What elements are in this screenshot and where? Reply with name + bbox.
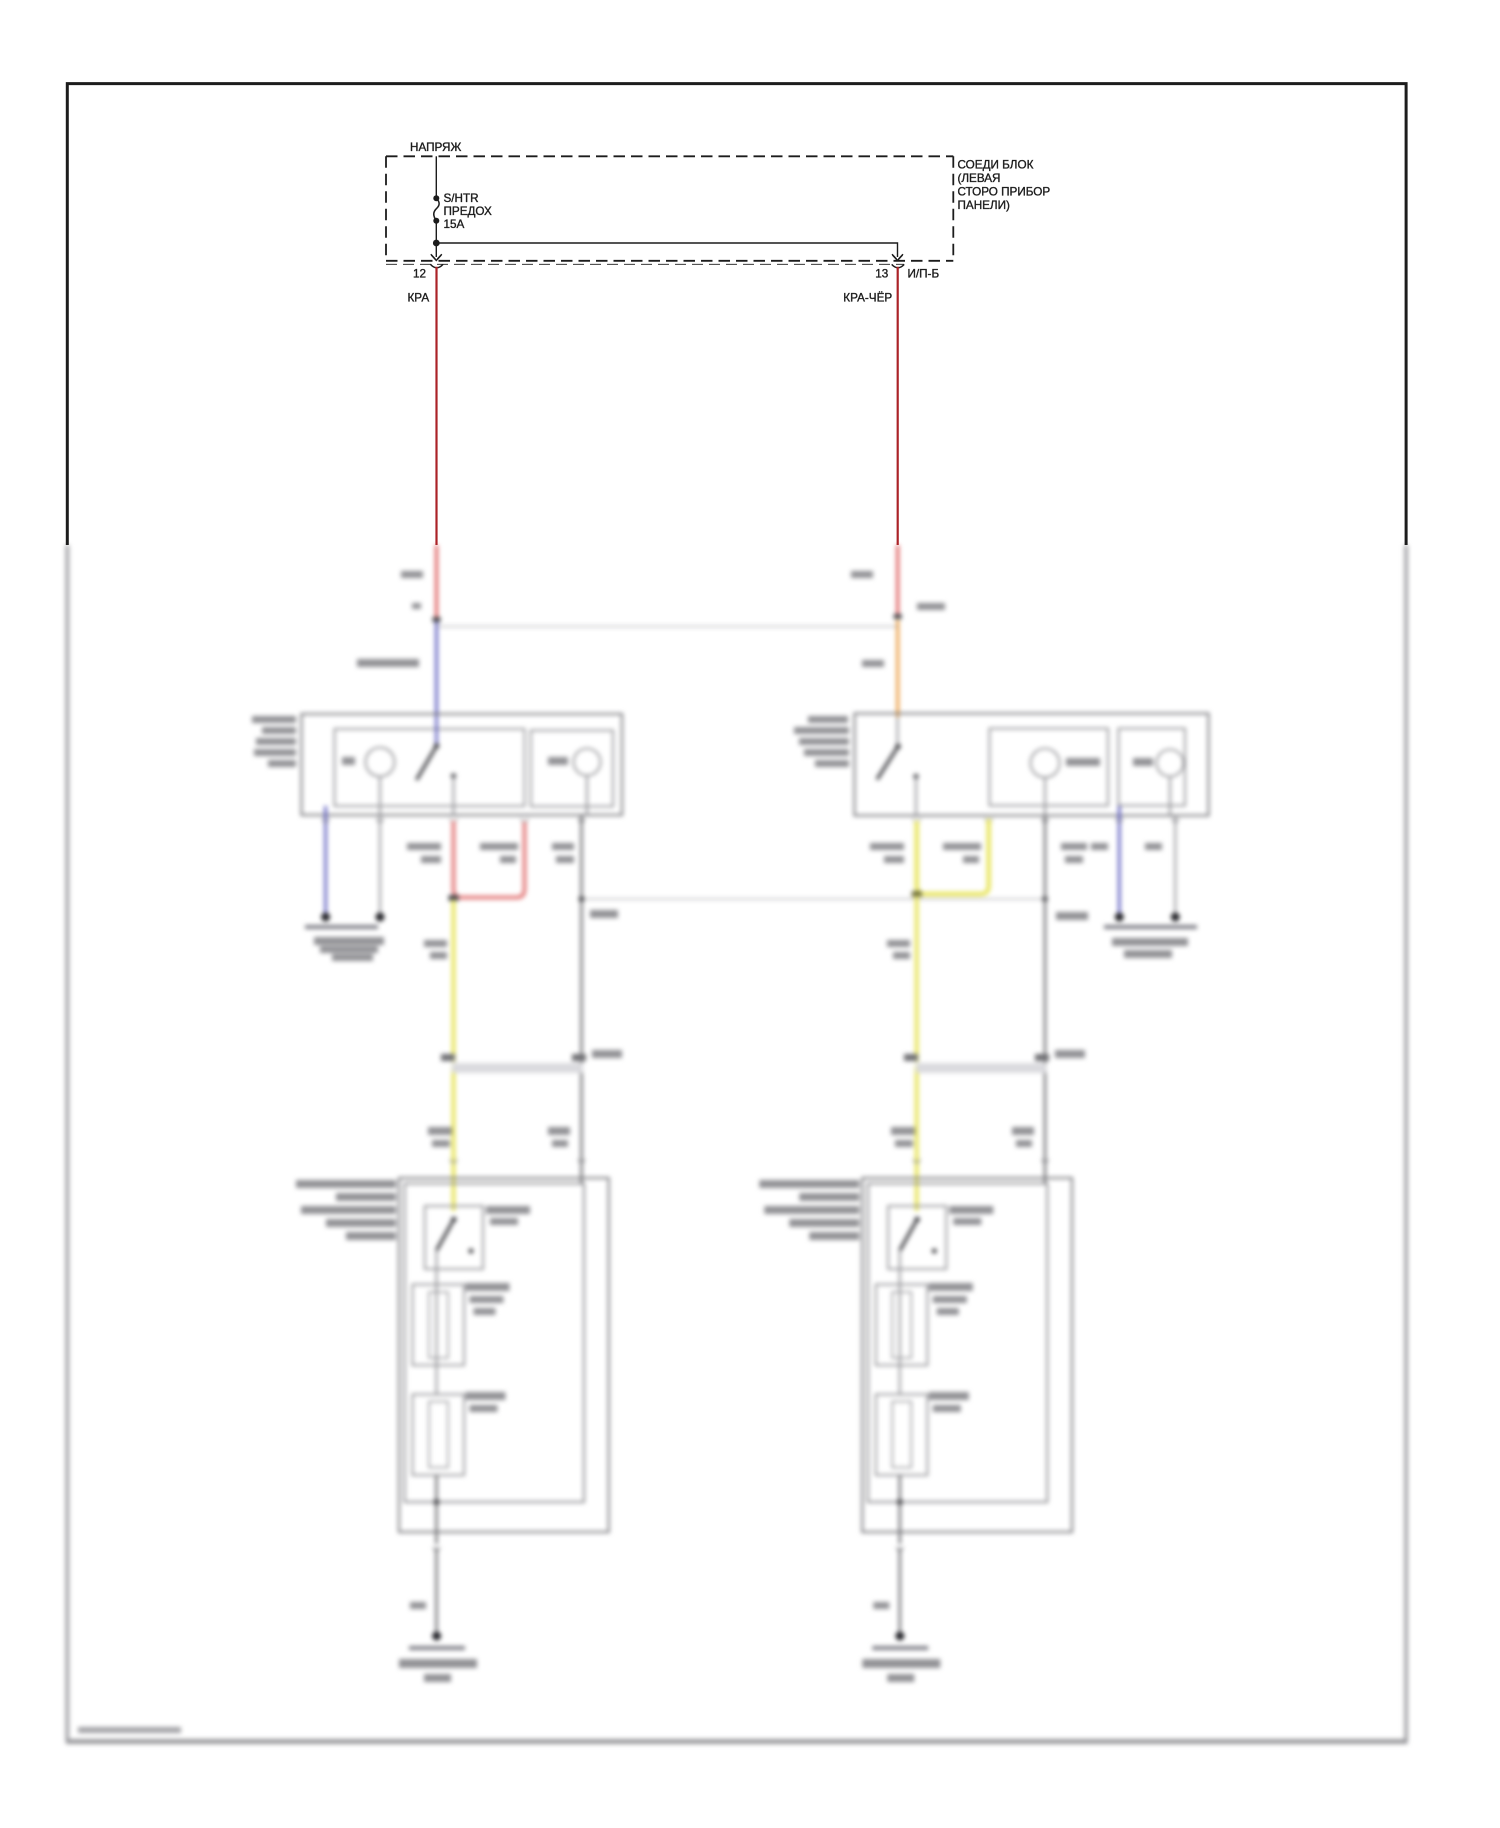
svg-text:S/HTR: S/HTR: [444, 192, 479, 205]
svg-text:КРА: КРА: [408, 292, 430, 305]
svg-text:СОЕДИ БЛОК: СОЕДИ БЛОК: [958, 159, 1034, 172]
svg-text:КРА-ЧЁР: КРА-ЧЁР: [843, 292, 892, 305]
svg-text:И/П-Б: И/П-Б: [908, 268, 940, 281]
svg-text:НАПРЯЖ: НАПРЯЖ: [410, 141, 461, 154]
svg-text:СТОРО ПРИБОР: СТОРО ПРИБОР: [958, 186, 1051, 199]
svg-text:ПАНЕЛИ): ПАНЕЛИ): [958, 199, 1011, 212]
svg-text:12: 12: [413, 268, 426, 281]
svg-text:ПРЕДОХ: ПРЕДОХ: [444, 205, 492, 218]
svg-text:15А: 15А: [444, 218, 465, 231]
svg-text:(ЛЕВАЯ: (ЛЕВАЯ: [958, 172, 1001, 185]
svg-text:13: 13: [875, 268, 888, 281]
